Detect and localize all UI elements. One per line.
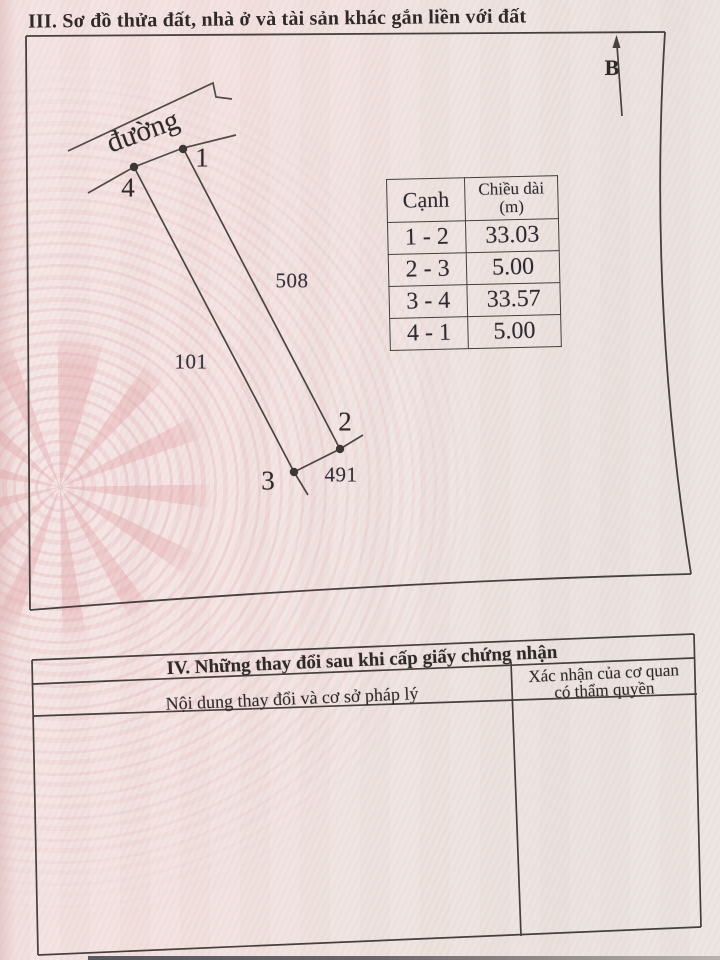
length-cell: 5.00 (466, 251, 560, 285)
edge-cell: 2 - 3 (388, 253, 467, 287)
table-row: 1 - 2 33.03 (387, 219, 559, 255)
photo-left-edge (0, 0, 16, 960)
section3-border-box (26, 32, 691, 610)
vertex-label-1: 1 (195, 143, 209, 174)
table-row: 4 - 1 5.00 (390, 315, 562, 351)
plot-number-101: 101 (175, 350, 208, 375)
plot-number-491: 491 (325, 463, 358, 488)
vertex-label-3: 3 (261, 466, 275, 497)
table-row: 2 - 3 5.00 (388, 251, 560, 287)
vertex-dot-3 (290, 468, 298, 476)
vertex-label-4: 4 (121, 173, 135, 204)
vertex-label-2: 2 (338, 407, 352, 438)
certificate-page: III. Sơ đồ thửa đất, nhà ở và tài sản kh… (0, 0, 720, 960)
length-column-header: Chiều dài (m) (464, 176, 558, 221)
length-cell: 33.57 (467, 283, 561, 317)
plot-number-508: 508 (276, 269, 309, 294)
north-label: B (605, 55, 620, 81)
section3-title: III. Sơ đồ thửa đất, nhà ở và tài sản kh… (28, 5, 526, 33)
edge-cell: 3 - 4 (389, 285, 468, 319)
edge-table-header-row: Cạnh Chiều dài (m) (387, 176, 559, 223)
section4-confirm-column-header: Xác nhận của cơ quan có thẩm quyền (528, 661, 680, 702)
parcel-boundary-lines (134, 148, 363, 495)
length-cell: 5.00 (468, 315, 562, 349)
edge-cell: 4 - 1 (390, 317, 469, 351)
section4-content-column-header: Nội dung thay đổi và cơ sở pháp lý (165, 683, 419, 715)
length-header-line2: (m) (465, 197, 557, 217)
edge-cell: 1 - 2 (387, 221, 466, 255)
length-cell: 33.03 (465, 219, 559, 253)
vertex-dot-4 (130, 163, 138, 171)
road-label: đường (102, 104, 183, 161)
vertex-dots (130, 145, 344, 476)
table-row: 3 - 4 33.57 (389, 283, 561, 319)
edge-column-header: Cạnh (387, 178, 466, 223)
edge-length-table: Cạnh Chiều dài (m) 1 - 2 33.03 2 - 3 5.0… (386, 175, 562, 351)
section4-title: IV. Những thay đổi sau khi cấp giấy chứn… (166, 642, 558, 680)
vertex-dot-1 (179, 145, 187, 153)
vertex-dot-2 (336, 445, 344, 453)
page-bottom-shadow (88, 956, 720, 960)
